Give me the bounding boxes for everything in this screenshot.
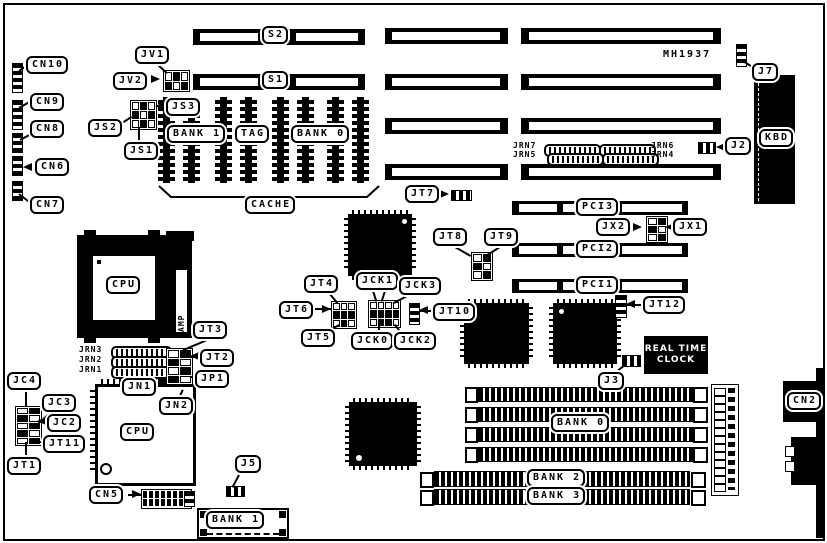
cn5-leader-arrow	[132, 490, 141, 498]
jt2-callout: JT2	[200, 349, 234, 367]
js2-callout: JS2	[88, 119, 122, 137]
chip-pins	[468, 364, 525, 368]
motherboard-diagram: S2 S1 MH1937 BANK 1 TAG BANK 0 CACHE JV1…	[0, 0, 827, 543]
jt12-callout: JT12	[643, 296, 685, 314]
pci-slot-key	[622, 246, 682, 254]
cache-chip	[352, 97, 369, 183]
jt7-leader	[440, 190, 449, 198]
pci-slot-key	[519, 204, 557, 212]
bank3-simm-label: BANK 3	[527, 487, 585, 505]
simm-endcap	[420, 472, 434, 488]
cpu-socket-tab	[84, 230, 96, 235]
jv2-callout: JV2	[113, 72, 147, 90]
pci-slot-key	[563, 246, 577, 254]
j5-callout: J5	[235, 455, 261, 473]
amp-connector-cap	[166, 231, 194, 241]
isa-slot-key	[529, 78, 713, 86]
kbd-label: KBD	[759, 129, 793, 147]
pin-header-cn7	[12, 181, 23, 201]
rtc-line2: CLOCK	[657, 355, 695, 365]
jv1-callout: JV1	[135, 46, 169, 64]
simm-endcap	[465, 407, 478, 423]
simm-endcap	[465, 387, 478, 403]
din-connector-pin	[785, 461, 795, 472]
pin-header-small	[184, 491, 195, 507]
jrn5-label: JRN5	[513, 150, 536, 159]
jt10-leader-arrow	[419, 306, 428, 314]
jck0-callout: JCK0	[351, 332, 393, 350]
jt5-callout: JT5	[301, 329, 335, 347]
jrn4-label: JRN4	[651, 150, 674, 159]
simm-endcap	[693, 407, 708, 423]
cache-bank0-label: BANK 0	[291, 125, 349, 143]
jx1-callout: JX1	[673, 218, 707, 236]
pin-header-jt7	[451, 190, 472, 201]
simm-endcap	[693, 447, 708, 463]
cn6-callout: CN6	[35, 158, 69, 176]
j2-leader	[716, 143, 725, 151]
jumper-block-jt8-jt9	[471, 252, 493, 281]
cache-label: CACHE	[245, 196, 295, 214]
simm-endcap	[691, 490, 706, 506]
din-connector	[791, 437, 824, 485]
bank1-simm-label: BANK 1	[206, 511, 264, 529]
pin-header-cn6	[12, 156, 23, 176]
jc2-leader-arrow	[37, 417, 46, 425]
cache-bank1-label: BANK 1	[167, 125, 225, 143]
jc2-callout: JC2	[47, 414, 81, 432]
chip-pins	[412, 218, 416, 272]
pin-header-j5	[226, 486, 245, 497]
cn6-leader	[23, 163, 32, 171]
socket-pad	[279, 511, 286, 518]
bank0-simm-label: BANK 0	[551, 414, 609, 432]
chip-pins	[353, 466, 413, 470]
jumper-block-jc	[15, 406, 42, 446]
jrn1-label: JRN1	[79, 365, 102, 374]
cn2-label: CN2	[787, 392, 821, 410]
jt6-callout: JT6	[279, 301, 313, 319]
cpu-socket-label: CPU	[106, 276, 140, 294]
simm-socket-bank0-row	[478, 387, 693, 402]
simm-endcap	[465, 447, 478, 463]
chip-pin1-dot	[402, 219, 407, 224]
slot-s1-label: S1	[262, 71, 288, 89]
pin-column	[728, 388, 735, 490]
cache-chip	[272, 97, 289, 183]
chip-pin1-dot	[356, 455, 362, 461]
amp-brand-label: AMP	[177, 300, 186, 332]
board-part-number: MH1937	[663, 49, 711, 60]
jc4-leader	[25, 389, 27, 407]
rtc-line1: REAL TIME	[645, 344, 708, 354]
jv2-leader	[151, 75, 160, 83]
pci-slot-key	[622, 204, 682, 212]
real-time-clock: REAL TIME CLOCK	[644, 336, 708, 374]
simm-endcap	[420, 490, 434, 506]
chip-pins	[417, 406, 421, 462]
cpu-qfp-pin1-circle	[100, 463, 112, 475]
slot-s1-key	[296, 78, 358, 86]
jumper-block-jt3-jt2-jp1	[166, 348, 193, 385]
jt12-leader-arrow	[626, 300, 635, 308]
isa-slot-key	[529, 32, 713, 40]
jc4-callout: JC4	[7, 372, 41, 390]
isa-slot-key	[529, 122, 713, 130]
cn8-callout: CN8	[30, 120, 64, 138]
simm-endcap	[693, 427, 708, 443]
socket-pad	[200, 529, 207, 536]
pci-slot-key	[622, 282, 682, 290]
cpu-socket-tab	[148, 230, 160, 235]
jp1-callout: JP1	[195, 370, 229, 388]
jt11-callout: JT11	[43, 435, 85, 453]
simm-endcap	[465, 427, 478, 443]
pci-slot-key	[563, 282, 577, 290]
chip-pins	[557, 364, 613, 368]
jt10-callout: JT10	[433, 303, 475, 321]
isa-slot-key	[392, 168, 500, 176]
pci3-label: PCI3	[576, 198, 618, 216]
jck3-callout: JCK3	[399, 277, 441, 295]
slot-s1-key	[200, 78, 258, 86]
isa-slot-key	[392, 122, 500, 130]
jumper-block-jv	[163, 70, 190, 92]
cn9-callout: CN9	[30, 93, 64, 111]
jt8-callout: JT8	[433, 228, 467, 246]
js1-callout: JS1	[124, 142, 158, 160]
jck2-callout: JCK2	[394, 332, 436, 350]
slot-s2-key	[200, 33, 258, 41]
js1-leader	[138, 127, 140, 143]
slot-s2-label: S2	[262, 26, 288, 44]
jrn6-label: JRN6	[651, 141, 674, 150]
j2-callout: J2	[725, 137, 751, 155]
socket-dashed-line	[207, 533, 279, 535]
cpu-socket-tab	[84, 338, 96, 343]
pin-header-j2	[698, 142, 716, 154]
pci1-label: PCI1	[576, 276, 618, 294]
simm-endcap	[691, 472, 706, 488]
jt6-leader-arrow	[322, 305, 331, 313]
jck1-callout: JCK1	[356, 272, 398, 290]
jn1-callout: JN1	[122, 378, 156, 396]
isa-slot-key	[529, 168, 713, 176]
js3-callout: JS3	[166, 98, 200, 116]
j3-callout: J3	[598, 372, 624, 390]
jrn3-label: JRN3	[79, 345, 102, 354]
isa-slot-key	[392, 78, 500, 86]
simm-socket-bank0-row	[478, 447, 693, 462]
slot-s2-key	[296, 33, 358, 41]
jrn2-label: JRN2	[79, 355, 102, 364]
cn7-callout: CN7	[30, 196, 64, 214]
socket-pad	[279, 529, 286, 536]
jt4-callout: JT4	[304, 275, 338, 293]
resistor-network-jrn5	[547, 153, 604, 166]
cpu-socket-tab	[148, 338, 160, 343]
pci-slot-key	[563, 204, 577, 212]
cache-tag-label: TAG	[235, 125, 269, 143]
jt3-callout: JT3	[193, 321, 227, 339]
isa-slot-key	[392, 32, 500, 40]
js3-leader	[155, 102, 164, 110]
jrn7-label: JRN7	[513, 141, 536, 150]
chip-pins	[529, 307, 533, 360]
bank2-simm-label: BANK 2	[527, 469, 585, 487]
jc3-callout: JC3	[42, 394, 76, 412]
jt1-callout: JT1	[7, 457, 41, 475]
pci-slot-key	[519, 246, 557, 254]
jn2-callout: JN2	[159, 397, 193, 415]
jumper-block-js	[130, 100, 157, 130]
jt2-leader-arrow	[190, 352, 199, 360]
pin-column	[714, 388, 726, 492]
cpu-socket-pin1	[97, 260, 101, 264]
cn10-callout: CN10	[26, 56, 68, 74]
jx2-leader	[633, 223, 642, 231]
cn5-callout: CN5	[89, 486, 123, 504]
din-connector-pin	[785, 446, 795, 457]
pin-header-cn8	[12, 133, 23, 153]
jt7-callout: JT7	[405, 185, 439, 203]
cpu-qfp-label: CPU	[120, 423, 154, 441]
pci2-label: PCI2	[576, 240, 618, 258]
pci-slot-key	[519, 282, 557, 290]
simm-endcap	[693, 387, 708, 403]
jt1-leader	[25, 442, 27, 458]
jx2-callout: JX2	[596, 218, 630, 236]
pin-header-strip	[711, 384, 739, 496]
jt9-callout: JT9	[484, 228, 518, 246]
chip-pin1-dot	[559, 309, 564, 314]
j7-callout: J7	[752, 63, 778, 81]
